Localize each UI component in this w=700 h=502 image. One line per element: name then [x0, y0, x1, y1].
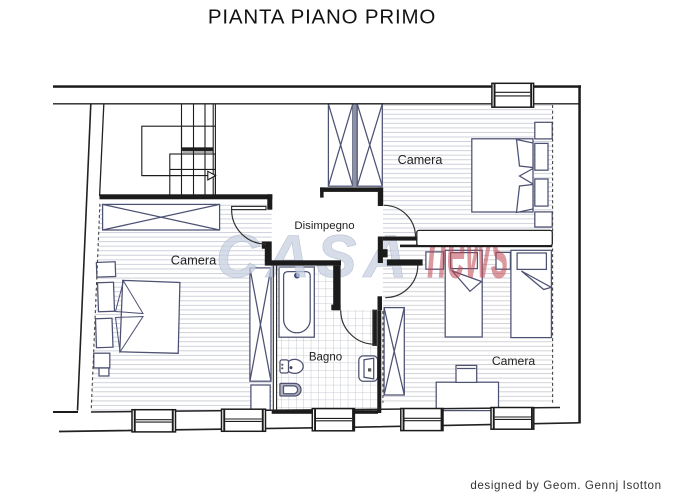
svg-text:Camera: Camera [171, 253, 217, 268]
svg-text:Camera: Camera [398, 153, 443, 167]
svg-text:designed by Geom. Gennj Isotto: designed by Geom. Gennj Isotton [470, 479, 661, 492]
svg-text:Bagno: Bagno [309, 352, 342, 364]
svg-text:Disimpegno: Disimpegno [294, 220, 354, 232]
svg-text:news: news [427, 206, 509, 295]
svg-text:PIANTA PIANO PRIMO: PIANTA PIANO PRIMO [208, 6, 436, 29]
svg-text:Camera: Camera [492, 354, 536, 368]
